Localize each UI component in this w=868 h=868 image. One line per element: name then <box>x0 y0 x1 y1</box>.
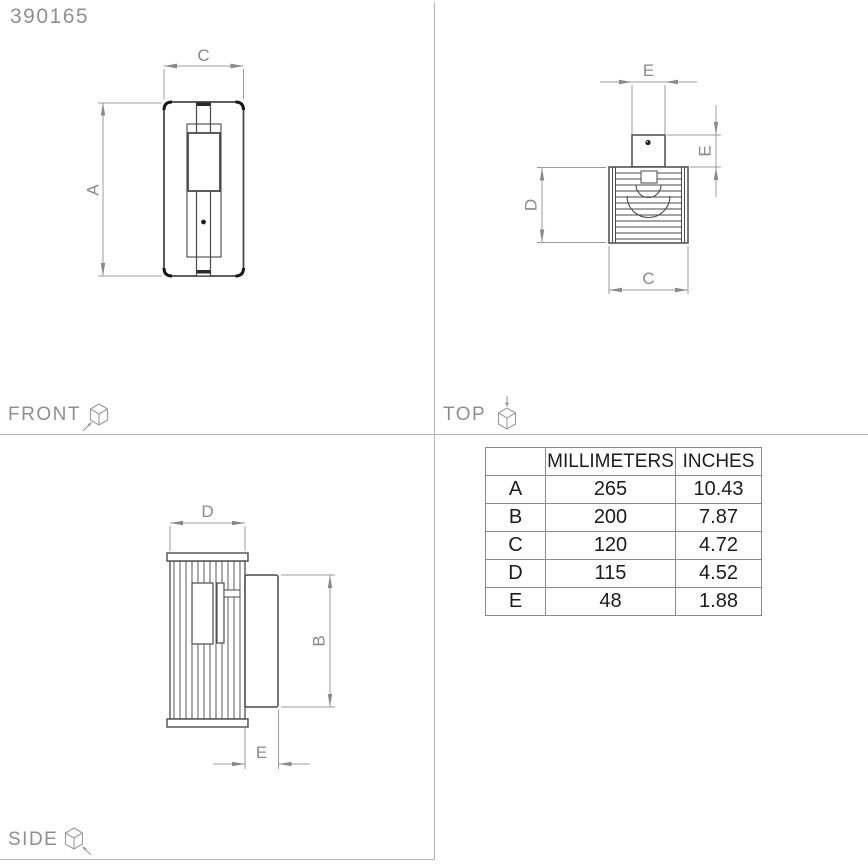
top-view-label: TOP <box>443 404 486 426</box>
dim-inches: 4.52 <box>676 560 762 588</box>
front-view-label: FRONT <box>8 404 81 426</box>
dimension-sheet: 390165 C A <box>0 0 868 868</box>
front-view-drawing: C A <box>60 40 260 290</box>
side-dim-b: B <box>281 575 335 707</box>
dim-label-e-top: E <box>643 61 654 80</box>
header-blank <box>486 448 546 476</box>
side-view-label: SIDE <box>8 829 58 851</box>
screw-top <box>645 140 650 145</box>
side-fixture <box>167 553 278 727</box>
dim-inches: 10.43 <box>676 476 762 504</box>
top-dim-c: C <box>609 246 688 294</box>
top-fixture <box>609 135 688 243</box>
dim-label-c-top: C <box>642 269 654 288</box>
top-view-icon <box>492 395 522 435</box>
header-inches: INCHES <box>676 448 762 476</box>
table-row: E 48 1.88 <box>486 588 762 616</box>
product-code: 390165 <box>10 5 89 29</box>
front-view-icon <box>80 398 114 434</box>
table-header-row: MILLIMETERS INCHES <box>486 448 762 476</box>
header-millimeters: MILLIMETERS <box>546 448 676 476</box>
dim-mm: 200 <box>546 504 676 532</box>
inner-driver <box>192 583 213 644</box>
table-row: D 115 4.52 <box>486 560 762 588</box>
side-dim-d: D <box>170 502 245 551</box>
vertical-divider <box>434 2 435 860</box>
top-view-drawing: E E D C <box>500 50 750 300</box>
inner-tab <box>224 590 240 597</box>
table-row: B 200 7.87 <box>486 504 762 532</box>
lamp-socket <box>641 171 657 183</box>
dim-key: C <box>486 532 546 560</box>
dim-inches: 7.87 <box>676 504 762 532</box>
dim-inches: 1.88 <box>676 588 762 616</box>
dim-label-a: A <box>84 184 103 196</box>
dim-mm: 120 <box>546 532 676 560</box>
inner-strip <box>217 583 224 643</box>
dim-mm: 115 <box>546 560 676 588</box>
dim-label-c: C <box>197 46 209 65</box>
table-row: C 120 4.72 <box>486 532 762 560</box>
front-fixture <box>164 102 244 276</box>
dim-label-b: B <box>310 635 329 646</box>
dim-key: E <box>486 588 546 616</box>
wall-mount-box <box>245 575 278 707</box>
dim-key: B <box>486 504 546 532</box>
dim-key: D <box>486 560 546 588</box>
bottom-divider <box>0 859 435 860</box>
dim-key: A <box>486 476 546 504</box>
front-dim-a: A <box>84 103 163 277</box>
dim-mm: 265 <box>546 476 676 504</box>
screw-front <box>201 220 206 225</box>
dim-label-d-side: D <box>201 502 213 521</box>
top-dim-e-width: E <box>600 61 697 134</box>
dim-inches: 4.72 <box>676 532 762 560</box>
dim-mm: 48 <box>546 588 676 616</box>
dim-label-e-side: E <box>256 743 267 762</box>
side-view-icon <box>58 822 94 858</box>
horizontal-divider <box>0 434 868 435</box>
dimension-table: MILLIMETERS INCHES A 265 10.43 B 200 7.8… <box>485 447 762 616</box>
dim-label-e-right: E <box>696 145 715 156</box>
front-dim-c: C <box>164 46 244 99</box>
bottom-cap <box>167 719 248 727</box>
top-cap <box>167 553 248 561</box>
dim-label-d-top: D <box>522 199 541 211</box>
top-dim-d: D <box>522 168 607 243</box>
table-row: A 265 10.43 <box>486 476 762 504</box>
side-view-drawing: D <box>130 500 360 780</box>
